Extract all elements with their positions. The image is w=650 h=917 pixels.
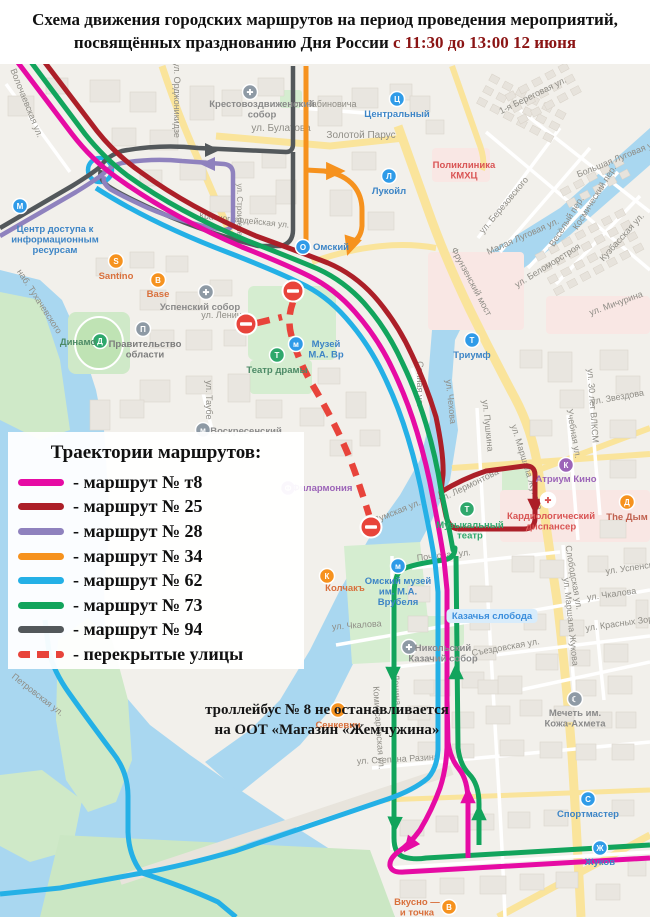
legend-row: - маршрут № 25 [8, 495, 304, 520]
poi-glyph: П [140, 325, 146, 334]
street-label: ул. Таубе [204, 380, 214, 419]
poi-label: Атриум Кино [535, 474, 596, 485]
poi-glyph: С [585, 795, 591, 804]
poi-label: Колчакъ [325, 583, 365, 594]
poi-glyph: К [325, 572, 330, 581]
poi-glyph: Л [386, 172, 392, 181]
poi-label: Мечеть им.Кожа-Ахмета [544, 708, 606, 730]
legend-label: - маршрут № 25 [73, 496, 203, 517]
poi-label: МузейМ.А. Вр [308, 339, 344, 361]
poi-label: Триумф [453, 350, 490, 361]
street-label: Золотой Парус [326, 130, 395, 141]
legend-row: - маршрут № т8 [8, 470, 304, 495]
legend-row: - маршрут № 28 [8, 519, 304, 544]
trolleybus-note: троллейбус № 8 не останавливается на ООТ… [162, 700, 492, 741]
page-title: Схема движения городских маршрутов на пе… [0, 0, 650, 64]
poi: Казачья слобода [447, 609, 538, 623]
street-label: ул. Булатова [251, 123, 311, 134]
poi-glyph: ☾ [571, 695, 578, 704]
poi-glyph: М [17, 202, 24, 211]
poi-glyph: В [446, 903, 452, 912]
poi: ООмский [296, 240, 350, 255]
poi-label: Лукойл [372, 186, 406, 197]
poi-label: Омский [313, 242, 349, 253]
poi-label: Динамо [60, 337, 97, 348]
legend-label: - маршрут № 73 [73, 595, 203, 616]
route-map-image: Волочаевская ул.ул. Орджоникидзеул. Раби… [0, 0, 650, 917]
poi-glyph: B [155, 276, 161, 285]
legend-label: - маршрут № 62 [73, 570, 203, 591]
legend-row: - маршрут № 62 [8, 568, 304, 593]
legend-swatch-r94 [18, 626, 64, 633]
poi-label: Казачья слобода [452, 611, 533, 622]
poi-label: Santino [99, 271, 134, 282]
poi-label: Центральный [364, 109, 430, 120]
poi-label: The Дым [606, 512, 647, 523]
street-label: ул. Орджоникидзе [172, 62, 182, 138]
poi-label: Спортмастер [557, 809, 619, 820]
title-line-1: Схема движения городских маршрутов на пе… [32, 9, 618, 32]
legend-row: - маршрут № 34 [8, 544, 304, 569]
legend-swatch-r34 [18, 553, 64, 560]
legend-row: - перекрытые улицы [8, 642, 304, 667]
legend-label: - маршрут № 28 [73, 521, 203, 542]
legend-swatch-t8 [18, 479, 64, 486]
poi-glyph: Т [275, 351, 280, 360]
poi-glyph: Ж [595, 844, 604, 853]
legend-swatch-r25 [18, 503, 64, 510]
poi-glyph: ✚ [247, 88, 254, 97]
legend-row: - маршрут № 94 [8, 618, 304, 643]
poi-glyph: м [293, 340, 299, 349]
routes-legend: Траектории маршрутов: - маршрут № т8- ма… [8, 432, 304, 669]
poi-label: Успенский собор [160, 302, 240, 313]
title-time-highlight: с 11:30 до 13:00 12 июня [393, 33, 576, 52]
poi-glyph: Т [465, 505, 470, 514]
legend-label: - маршрут № т8 [73, 472, 202, 493]
poi-glyph: S [113, 257, 119, 266]
legend-row: - маршрут № 73 [8, 593, 304, 618]
poi-glyph: О [300, 243, 306, 252]
legend-label: - маршрут № 94 [73, 619, 203, 640]
poi: ✚НикольскийКазачий собор [402, 640, 478, 665]
legend-swatch-r28 [18, 528, 64, 535]
poi-glyph: ✚ [406, 643, 413, 652]
legend-swatch-closed [18, 651, 64, 658]
poi-glyph: м [395, 562, 401, 571]
no-entry-sign [361, 517, 382, 538]
poi-label: Вкусно —и точка [394, 897, 440, 917]
poi-glyph: Ц [394, 95, 400, 104]
poi-glyph: ✚ [545, 496, 552, 505]
legend-label: - маршрут № 34 [73, 546, 203, 567]
poi-label: Театр драмы [246, 365, 307, 376]
poi-label: Жуков [584, 857, 615, 868]
legend-rows: - маршрут № т8- маршрут № 25- маршрут № … [8, 470, 304, 667]
no-entry-sign [283, 281, 304, 302]
poi-glyph: К [564, 461, 569, 470]
poi-label: Base [147, 289, 170, 300]
poi-glyph: Т [470, 336, 475, 345]
poi-glyph: ✚ [203, 288, 210, 297]
poi-label: НикольскийКазачий собор [408, 643, 478, 665]
legend-title: Траектории маршрутов: [8, 442, 304, 464]
legend-label: - перекрытые улицы [73, 644, 243, 665]
poi: ВВкусно —и точка [394, 897, 456, 917]
title-line-2: посвящённых празднованию Дня России с 11… [74, 32, 576, 55]
poi-glyph: Д [97, 337, 103, 346]
no-entry-sign [236, 314, 257, 335]
legend-swatch-r62 [18, 577, 64, 584]
legend-swatch-r73 [18, 602, 64, 609]
poi-glyph: Д [624, 498, 630, 507]
